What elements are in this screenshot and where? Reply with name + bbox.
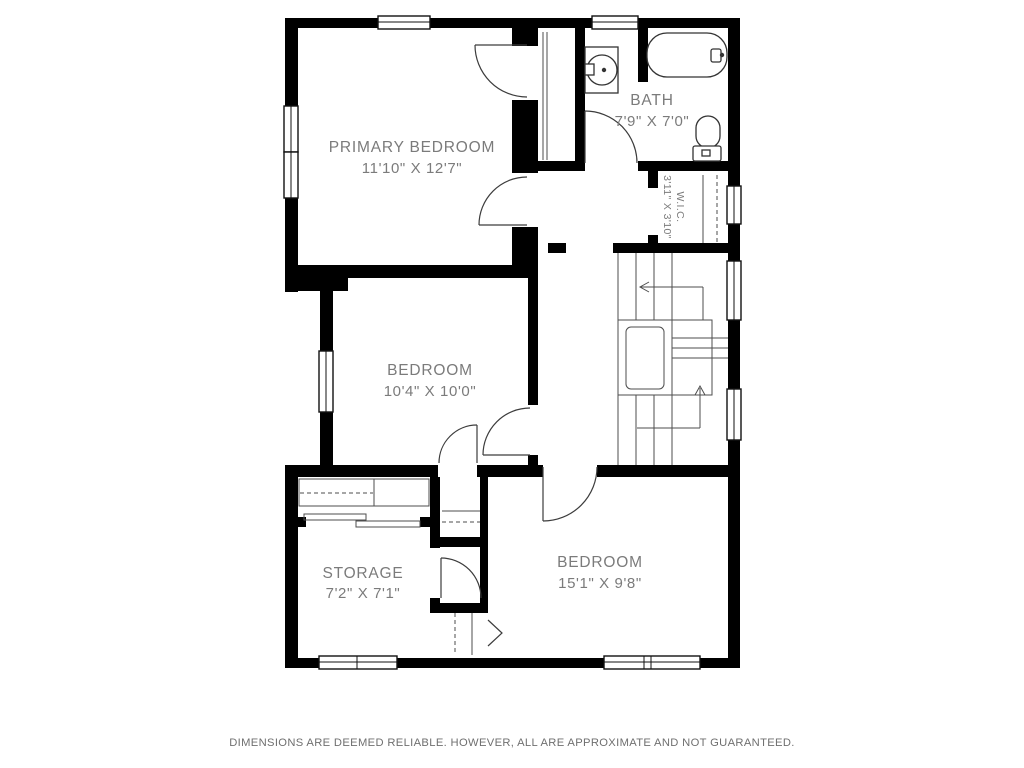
room-label-bath: BATH: [630, 92, 673, 109]
wall: [477, 465, 543, 477]
door-arc: [483, 408, 530, 455]
room-label-primary-bedroom: PRIMARY BEDROOM: [329, 139, 495, 156]
wall: [638, 18, 648, 82]
wall: [285, 465, 298, 668]
room-dims-primary-bedroom: 11'10" X 12'7": [362, 160, 462, 177]
wall: [420, 517, 432, 527]
wall: [320, 278, 333, 352]
window: [378, 16, 430, 29]
room-label-wic-group: W.I.C. 3'11" X 3'10": [661, 175, 686, 239]
sliding-door-panel: [356, 521, 420, 527]
window: [727, 261, 741, 320]
sink-icon: [585, 47, 618, 93]
room-dims-bedroom-2: 15'1" X 9'8": [558, 575, 642, 592]
door-arc: [475, 45, 527, 97]
wall: [575, 18, 585, 170]
wall: [285, 265, 538, 278]
window: [284, 152, 298, 198]
wall: [548, 243, 566, 253]
wall: [648, 171, 658, 188]
bathtub-icon: [647, 33, 727, 77]
room-dims-bath: 7'9" X 7'0": [615, 113, 690, 130]
door-arc: [543, 467, 597, 521]
door-arc: [441, 558, 481, 598]
wall: [613, 243, 740, 253]
window: [319, 656, 397, 669]
room-labels: PRIMARY BEDROOM 11'10" X 12'7" BATH 7'9"…: [322, 92, 689, 602]
window: [727, 389, 741, 440]
staircase: [618, 253, 728, 465]
window: [592, 16, 638, 29]
wall: [285, 465, 438, 477]
toilet-icon: [693, 116, 721, 161]
room-dims-wic: 3'11" X 3'10": [661, 175, 673, 239]
window: [319, 351, 333, 412]
wall: [728, 18, 740, 668]
door-arc: [479, 177, 527, 225]
closet-bifold-door: [488, 620, 502, 646]
door-arc: [439, 425, 477, 463]
wall: [528, 278, 538, 405]
room-dims-bedroom-mid: 10'4" X 10'0": [384, 383, 477, 400]
window: [284, 106, 298, 152]
room-label-wic: W.I.C.: [674, 192, 686, 223]
wall: [430, 603, 488, 613]
disclaimer-text: DIMENSIONS ARE DEEMED RELIABLE. HOWEVER,…: [229, 737, 795, 749]
room-label-bedroom-mid: BEDROOM: [387, 362, 473, 379]
wall: [638, 161, 740, 171]
wall: [430, 477, 440, 548]
stair-direction-arrow-up: [637, 386, 705, 428]
wall: [597, 465, 740, 477]
window: [604, 656, 700, 669]
wall: [440, 537, 488, 547]
wall: [512, 28, 538, 46]
wall: [538, 161, 585, 171]
floor-plan-page: PRIMARY BEDROOM 11'10" X 12'7" BATH 7'9"…: [0, 0, 1024, 768]
stair-treads: [618, 253, 728, 465]
wall: [298, 517, 306, 527]
room-label-storage: STORAGE: [322, 565, 403, 582]
wall: [512, 100, 538, 173]
room-dims-storage: 7'2" X 7'1": [326, 585, 401, 602]
floor-plan: PRIMARY BEDROOM 11'10" X 12'7" BATH 7'9"…: [0, 0, 1024, 768]
sliding-door-panel: [304, 514, 366, 520]
room-label-bedroom-2: BEDROOM: [557, 554, 643, 571]
window: [727, 186, 741, 224]
